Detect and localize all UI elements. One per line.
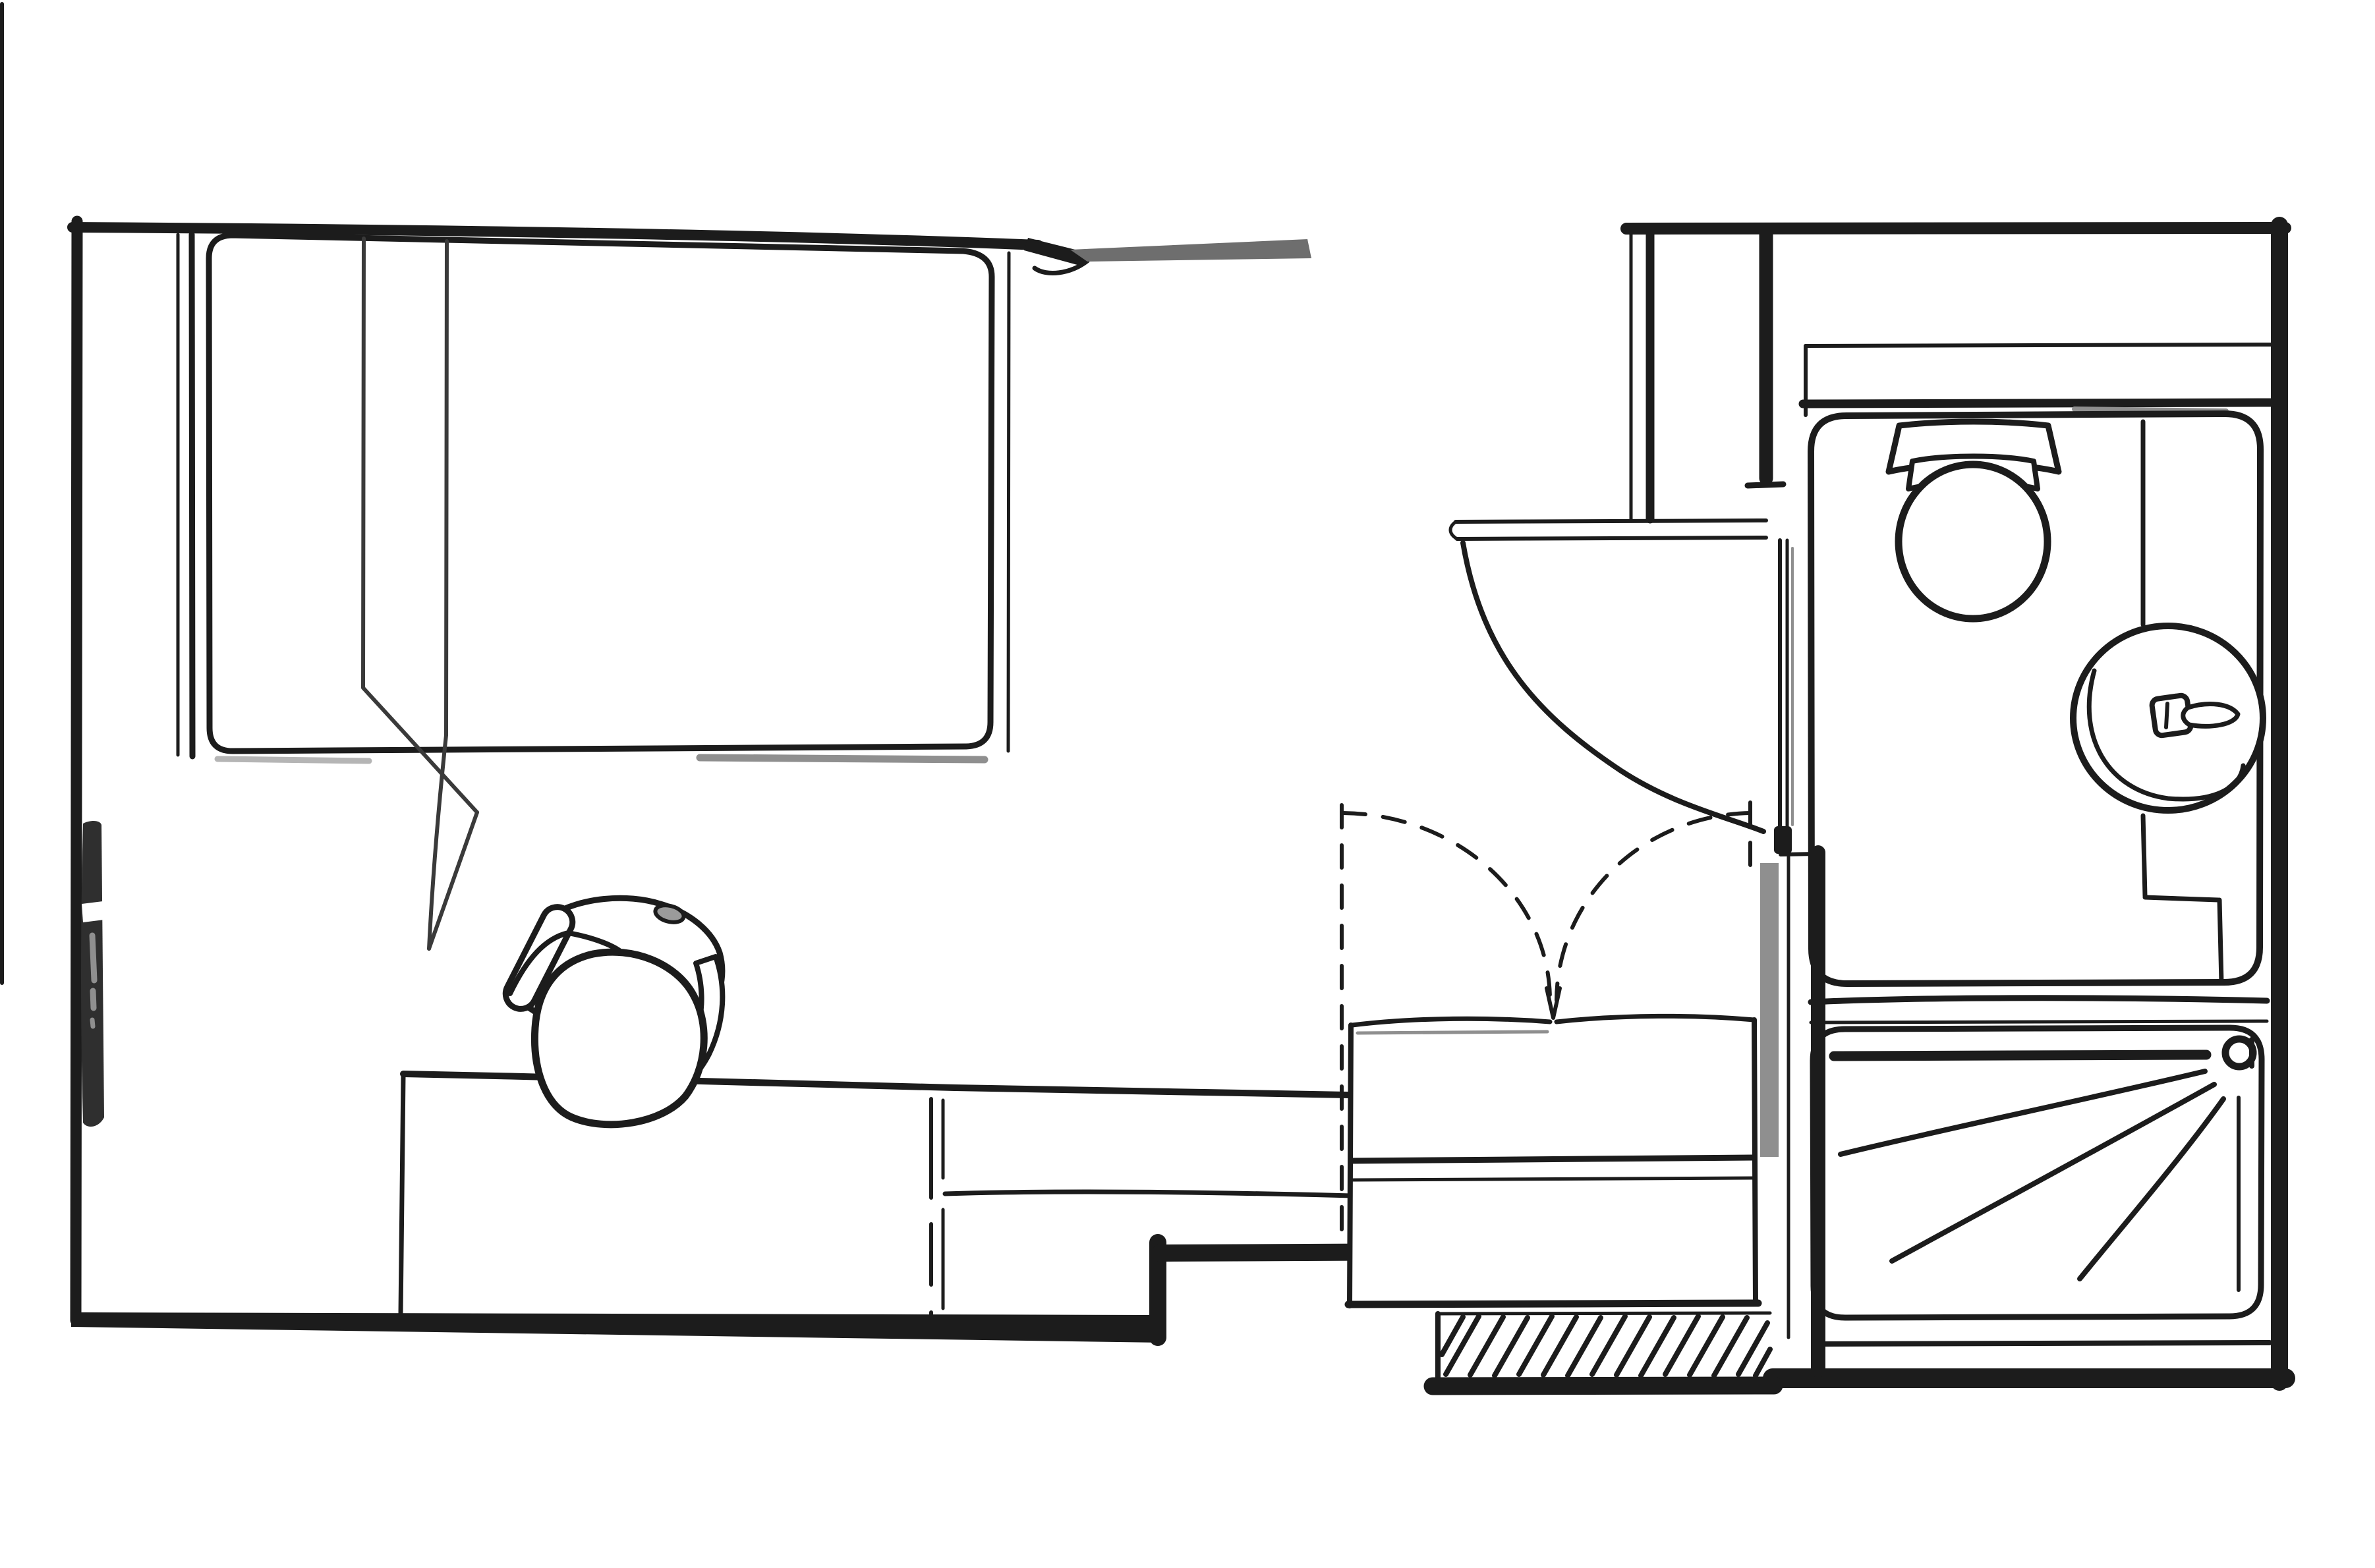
- bottom-wall-left: [71, 1312, 1164, 1343]
- fold-line-right: [446, 241, 447, 735]
- floor-plan-page: Hand-drawn black and white floor plan of…: [0, 0, 2375, 1568]
- drawer-unit-bottom-edge: [1348, 1303, 1758, 1304]
- shower-spray-line-1: [1841, 1071, 2205, 1154]
- bed-headboard-thick-line: [192, 235, 192, 756]
- bed-footboard-line: [1008, 253, 1009, 751]
- door-leaf-end-block: [1774, 826, 1792, 854]
- door-swing-arc: [1463, 543, 1763, 831]
- drawer-divider-thin: [1352, 1178, 1754, 1180]
- door-frame-tick: [1748, 484, 1783, 486]
- tap-spout: [2183, 704, 2238, 727]
- wardrobe-left-door-arc: [1343, 813, 1550, 1000]
- bathroom-top-wall: [1626, 228, 2285, 229]
- door-header-line-bottom: [1457, 538, 1766, 539]
- door-header-line-top: [1456, 520, 1766, 522]
- tap-slot: [2166, 704, 2167, 727]
- desk-left-edge: [401, 1075, 403, 1314]
- duct-shelf: [1803, 345, 2271, 415]
- shower-spray-line-3: [2080, 1099, 2223, 1279]
- shower-partition-line-b: [1811, 1021, 2267, 1022]
- wardrobe-door-meet-mark: [1547, 988, 1560, 1018]
- drawer-divider-thick: [1352, 1158, 1754, 1161]
- bed-outline: [209, 235, 992, 751]
- radiator: [81, 821, 104, 1127]
- duct-bottom-line: [1803, 403, 2271, 404]
- partition-lower-segment: [2143, 816, 2145, 896]
- hatch-bottom-bar: [1433, 1386, 1774, 1386]
- wardrobe-right-door-arc: [1557, 813, 1750, 1000]
- bed-shadow-left: [217, 759, 369, 761]
- drawer-unit-right-edge: [1754, 1020, 1756, 1303]
- radiator-mark-2: [93, 991, 94, 1008]
- partition-jog-horizontal: [2145, 897, 2218, 900]
- radiator-mark-3: [92, 1020, 93, 1026]
- door-header-end-cap: [1450, 522, 1457, 539]
- bed-shadow-right: [700, 758, 985, 760]
- shower-drain: [2225, 1039, 2253, 1067]
- office-chair: [500, 898, 722, 1125]
- bathroom: [1788, 345, 2271, 1370]
- left-wall: [76, 221, 77, 1320]
- radiator-mark-1: [92, 936, 94, 980]
- chair-seat-blob: [534, 952, 704, 1125]
- room-door: [1450, 520, 1817, 854]
- toilet-bowl: [1899, 464, 2047, 619]
- counter-front-edge: [945, 1192, 1352, 1196]
- duct-top-line: [1806, 345, 2271, 346]
- drawer-unit-top-shadow: [1358, 1032, 1547, 1033]
- threshold-hatch: [1433, 1313, 1774, 1386]
- top-opening-bar: [1070, 239, 1311, 262]
- floor-plan-drawing: Hand-drawn black and white floor plan of…: [0, 0, 2375, 1568]
- hatch-strokes: [1442, 1316, 1770, 1376]
- shower: [1811, 998, 2270, 1344]
- partition-jog-vertical: [2219, 900, 2221, 983]
- partition-walls: [1631, 233, 1783, 519]
- chest-of-drawers: [1348, 863, 1779, 1306]
- wardrobe-wall-shadow-band: [1760, 863, 1779, 1157]
- shower-screen-bar: [1834, 1055, 2206, 1056]
- bed: [178, 235, 1009, 949]
- shower-partition-line-a: [1811, 998, 2267, 1002]
- bathroom-floor-line: [1815, 1343, 2270, 1344]
- desk: [401, 1074, 1353, 1322]
- radiator-gap: [82, 901, 104, 922]
- drawer-unit-fill: [1351, 1021, 1756, 1306]
- wash-basin: [2073, 626, 2263, 810]
- hatch-top-line: [1439, 1313, 1770, 1314]
- drawer-unit-top-right: [1557, 1016, 1754, 1022]
- toilet: [1889, 422, 2059, 619]
- drawer-unit-left-edge: [1350, 1025, 1351, 1306]
